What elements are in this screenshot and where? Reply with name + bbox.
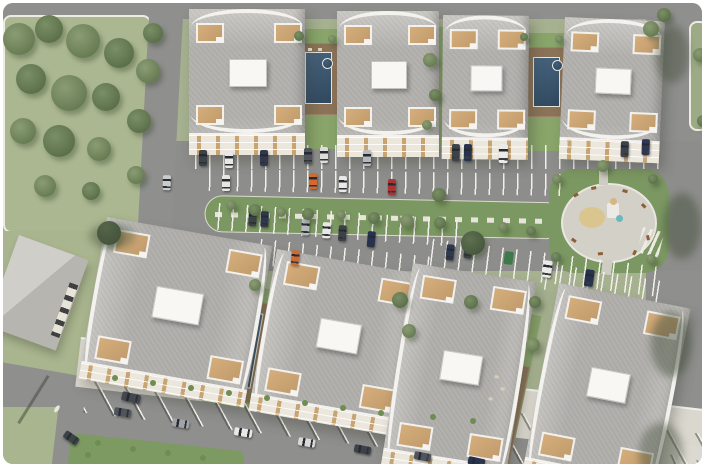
shrub (85, 452, 91, 458)
tree (429, 89, 441, 101)
tree (597, 160, 609, 172)
parked-car (260, 150, 268, 166)
tree (392, 292, 408, 308)
shrub (430, 414, 436, 420)
building-1 (189, 9, 305, 155)
parked-car (338, 225, 347, 242)
shrub (112, 375, 118, 381)
parked-car (199, 150, 207, 166)
tree (423, 53, 437, 67)
parked-car (260, 211, 269, 227)
parked-car (464, 144, 472, 161)
deck-chair (500, 387, 505, 391)
tree (461, 231, 485, 255)
tree (16, 64, 46, 94)
shrub (340, 405, 346, 411)
parked-car (162, 175, 171, 190)
tree (302, 208, 314, 220)
rooftop-terrace (396, 422, 433, 451)
tree (43, 125, 75, 157)
parked-car (445, 244, 455, 261)
tree (551, 252, 561, 262)
tree (526, 226, 536, 236)
tree (693, 48, 702, 62)
shrub (226, 390, 232, 396)
shrub (302, 400, 308, 406)
deck-chair (308, 48, 312, 51)
building-3 (442, 15, 529, 160)
parked-car (620, 141, 629, 157)
tree (328, 35, 336, 43)
shrub (95, 440, 101, 446)
parked-car (222, 175, 230, 191)
tree (127, 109, 151, 133)
rooftop-terrace (449, 109, 477, 129)
parked-car (499, 144, 508, 163)
tree (432, 188, 446, 202)
roof-skylight (595, 67, 632, 95)
spa-circle (322, 58, 333, 69)
tree (434, 217, 446, 229)
roof-skylight (586, 366, 631, 403)
spa-circle (552, 60, 563, 71)
parked-car (641, 139, 650, 155)
tree (529, 296, 541, 308)
rooftop-terrace (344, 107, 372, 127)
parked-car (309, 173, 317, 189)
parked-car (304, 148, 312, 164)
tree (402, 324, 416, 338)
parked-car (388, 179, 396, 195)
parked-car (367, 231, 376, 248)
tree (552, 174, 562, 184)
rooftop-terrace (450, 29, 478, 49)
play-tower (610, 198, 617, 205)
tree (66, 24, 100, 58)
tree (294, 31, 304, 41)
tree (526, 338, 540, 352)
tree (87, 137, 111, 161)
rooftop-terrace (344, 25, 372, 45)
aerial-render-frame (0, 0, 705, 467)
parked-car (363, 150, 371, 166)
rooftop-terrace (264, 367, 302, 397)
tree (657, 8, 671, 22)
tree-shadow (655, 25, 689, 83)
rooftop-terrace (490, 286, 527, 315)
tree (104, 38, 134, 68)
parked-car (320, 147, 328, 163)
rooftop-terrace (196, 23, 224, 43)
rooftop-terrace (274, 105, 302, 125)
tree (646, 254, 656, 264)
parked-car (301, 219, 310, 236)
tree (643, 21, 659, 37)
parked-car (322, 222, 331, 239)
deck-chair (318, 48, 322, 51)
rooftop-terrace (497, 109, 525, 129)
shrub (470, 418, 476, 424)
tree (249, 204, 261, 216)
rooftop-terrace (196, 105, 224, 125)
shrub (264, 395, 270, 401)
bench (598, 252, 603, 255)
tree-shadow (663, 193, 701, 259)
sand-pit (579, 207, 605, 228)
tree (3, 23, 35, 55)
bench (646, 235, 650, 240)
tree (35, 15, 63, 43)
tree (82, 182, 100, 200)
tree (10, 118, 36, 144)
shrub (165, 450, 171, 456)
tree (555, 35, 563, 43)
tree (336, 210, 346, 220)
roof-skylight (151, 286, 204, 326)
rooftop-terrace (564, 295, 602, 325)
shrub (188, 385, 194, 391)
rooftop-terrace (420, 275, 457, 304)
tree (249, 279, 261, 291)
deck-chair (488, 397, 493, 401)
parked-car (225, 152, 233, 168)
roof-skylight (470, 65, 502, 91)
parked-car (339, 176, 347, 192)
roof-skylight (229, 59, 267, 87)
tree (464, 295, 478, 309)
tree (51, 75, 87, 111)
shrub (378, 410, 384, 416)
tree (136, 59, 160, 83)
tree (276, 207, 286, 217)
rooftop-terrace (629, 112, 658, 133)
rooftop-terrace (567, 109, 596, 130)
tree (697, 115, 702, 127)
building-2 (337, 11, 439, 157)
roof-skylight (371, 61, 407, 89)
rooftop-terrace (538, 432, 576, 462)
parked-car (452, 144, 460, 161)
shrub (200, 455, 206, 461)
rooftop-terrace (225, 249, 263, 279)
rooftop-terrace (571, 31, 600, 52)
tree (34, 175, 56, 197)
tree (520, 33, 528, 41)
tree (92, 83, 120, 111)
roof-skylight (316, 318, 363, 355)
tree (648, 174, 658, 184)
deck-chair (494, 375, 499, 379)
shrub (150, 380, 156, 386)
parked-car (290, 250, 300, 266)
rooftop-terrace (408, 25, 436, 45)
rooftop-terrace (94, 335, 132, 365)
roof-skylight (439, 349, 483, 385)
rooftop-terrace (206, 355, 244, 385)
tree (422, 120, 432, 130)
play-slide (616, 215, 623, 222)
tree (226, 200, 236, 210)
tree (498, 222, 508, 232)
residential-complex-aerial-render (3, 3, 702, 464)
tree (127, 166, 145, 184)
tree (368, 212, 380, 224)
tree (400, 214, 414, 228)
rooftop-terrace (283, 261, 321, 291)
tree-shadow (89, 223, 135, 249)
building-facade-balconies (337, 135, 439, 157)
tree-shadow (651, 311, 691, 377)
tree (143, 23, 163, 43)
shrub (130, 446, 136, 452)
dumpster (503, 251, 514, 265)
